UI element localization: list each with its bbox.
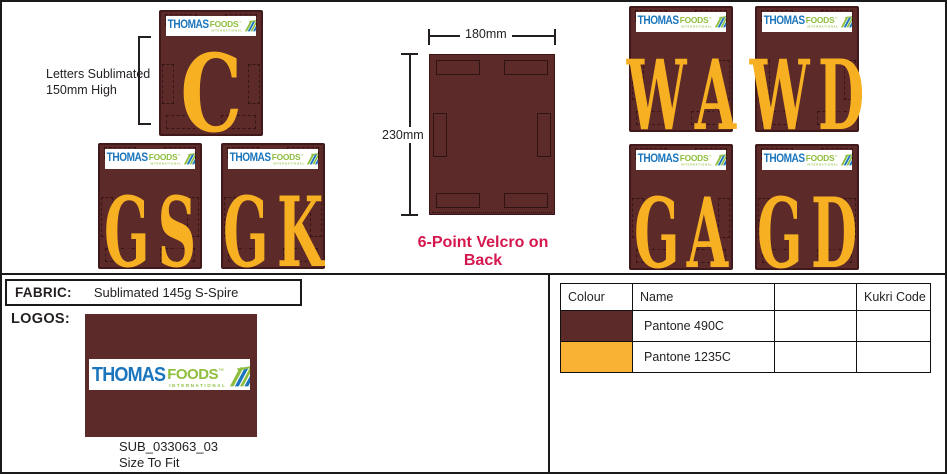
- patch-back-view: [429, 54, 555, 215]
- table-header-row: Colour Name Kukri Code: [561, 284, 931, 311]
- patch-letter: G✶: [755, 224, 805, 282]
- tfi-field-icon: [840, 13, 852, 28]
- tfi-field-icon: [840, 151, 852, 166]
- logo-thomas-text: THOMAS: [168, 18, 209, 32]
- size-to-fit: Size To Fit: [119, 455, 218, 471]
- logo-foods-wrap: FOODS™ INTERNATIONAL: [806, 16, 838, 26]
- logo-foods-wrap: FOODS™ INTERNATIONAL: [806, 154, 838, 164]
- logo-foods-text: FOODS: [680, 16, 708, 26]
- height-bracket: [138, 36, 151, 125]
- blank-cell: [775, 311, 857, 342]
- colour-swatch-gold: [561, 342, 633, 373]
- letter-patch-c: THOMAS FOODS™ INTERNATIONAL C✶: [159, 10, 263, 136]
- letter-patch-gd: THOMAS FOODS™ INTERNATIONAL G✶D✶: [755, 144, 859, 270]
- height-dimension-tick: [401, 53, 418, 55]
- thomas-foods-logo: THOMAS FOODS™ INTERNATIONAL: [636, 12, 726, 29]
- logo-swatch: THOMAS FOODS™ INTERNATIONAL: [85, 314, 257, 437]
- logo-foods-text: FOODS: [680, 154, 708, 164]
- patch-logo-strip: THOMAS FOODS™ INTERNATIONAL: [105, 149, 195, 169]
- colour-table: Colour Name Kukri Code Pantone 490C Pant…: [560, 283, 931, 373]
- logo-international-text: INTERNATIONAL: [273, 162, 305, 165]
- logo-trademark: ™: [708, 17, 711, 20]
- thomas-foods-logo: THOMAS FOODS™ INTERNATIONAL: [105, 149, 195, 166]
- patch-letters: G✶A✶: [631, 224, 731, 282]
- kukri-emblem-icon: ✶: [207, 112, 215, 121]
- patch-letter: G✶: [102, 223, 152, 281]
- logo-trademark: ™: [834, 17, 837, 20]
- logo-trademark: ™: [177, 154, 180, 157]
- patch-letters: G✶D✶: [757, 224, 857, 282]
- logo-international-text: INTERNATIONAL: [150, 162, 182, 165]
- letter-patch-gk: THOMAS FOODS™ INTERNATIONAL G✶K✶: [221, 143, 325, 269]
- patch-logo-strip: THOMAS FOODS™ INTERNATIONAL: [762, 12, 852, 32]
- logo-thomas-text: THOMAS: [764, 14, 805, 28]
- kukri-emblem-icon: ✶: [653, 246, 661, 255]
- patch-logo-strip: THOMAS FOODS™ INTERNATIONAL: [762, 150, 852, 170]
- stitch-line: [432, 212, 552, 213]
- velcro-strip: [504, 60, 548, 75]
- logo-foods-text: FOODS: [272, 153, 300, 163]
- height-dimension-tick: [401, 214, 418, 216]
- velcro-strip: [436, 193, 480, 208]
- logo-foods-wrap: FOODS™ INTERNATIONAL: [272, 153, 304, 163]
- patch-letters: G✶S✶: [100, 223, 200, 281]
- patch-letter: K✶: [275, 223, 325, 281]
- letter-patch-wa: THOMAS FOODS™ INTERNATIONAL W✶A✶: [629, 6, 733, 132]
- logo-international-text: INTERNATIONAL: [807, 25, 839, 28]
- kukri-emblem-icon: ✶: [704, 246, 712, 255]
- kukri-emblem-icon: ✶: [296, 245, 304, 254]
- logo-international-text: INTERNATIONAL: [681, 25, 713, 28]
- tfi-field-icon: [714, 151, 726, 166]
- logo-foods-wrap: FOODS™ INTERNATIONAL: [210, 20, 242, 30]
- logo-thomas-text: THOMAS: [107, 151, 148, 165]
- logo-thomas-text: THOMAS: [230, 151, 271, 165]
- sublimation-code: SUB_033063_03 Size To Fit: [119, 439, 218, 470]
- logo-foods-text: FOODS: [210, 20, 238, 30]
- thomas-foods-logo: THOMAS FOODS™ INTERNATIONAL: [166, 16, 256, 33]
- thomas-foods-logo: THOMAS FOODS™ INTERNATIONAL: [228, 149, 318, 166]
- tfi-field-icon: [183, 150, 195, 165]
- logo-thomas-text: THOMAS: [764, 152, 805, 166]
- colour-name: Pantone 1235C: [633, 342, 775, 373]
- logo-international-text: INTERNATIONAL: [169, 383, 226, 388]
- kukri-code-cell: [857, 311, 931, 342]
- letter-patch-ga: THOMAS FOODS™ INTERNATIONAL G✶A✶: [629, 144, 733, 270]
- letter-patch-gs: THOMAS FOODS™ INTERNATIONAL G✶S✶: [98, 143, 202, 269]
- kukri-emblem-icon: ✶: [242, 245, 250, 254]
- kukri-emblem-icon: ✶: [123, 245, 131, 254]
- logo-international-text: INTERNATIONAL: [211, 29, 243, 32]
- logo-foods-wrap: FOODS™ INTERNATIONAL: [680, 154, 712, 164]
- logo-foods-text: FOODS: [167, 366, 218, 383]
- logo-thomas-text: THOMAS: [92, 362, 165, 386]
- patch-logo-strip: THOMAS FOODS™ INTERNATIONAL: [166, 16, 256, 36]
- patch-logo-strip: THOMAS FOODS™ INTERNATIONAL: [636, 150, 726, 170]
- velcro-strip: [504, 193, 548, 208]
- kukri-emblem-icon: ✶: [776, 108, 784, 117]
- thomas-foods-logo: THOMAS FOODS™ INTERNATIONAL: [89, 359, 250, 390]
- colour-name: Pantone 490C: [633, 311, 775, 342]
- velcro-note: 6-Point Velcro on Back: [402, 234, 564, 270]
- logo-trademark: ™: [834, 155, 837, 158]
- patch-letter: D✶: [816, 86, 866, 144]
- patch-logo-strip: THOMAS FOODS™ INTERNATIONAL: [636, 12, 726, 32]
- patch-letter: D✶: [809, 224, 859, 282]
- tfi-field-icon: [306, 150, 318, 165]
- width-dimension-tick: [554, 29, 556, 45]
- patch-letters: W✶A✶: [631, 86, 731, 144]
- thomas-foods-logo: THOMAS FOODS™ INTERNATIONAL: [762, 150, 852, 167]
- kukri-emblem-icon: ✶: [838, 108, 846, 117]
- velcro-strip: [537, 113, 551, 157]
- velcro-strip: [433, 113, 447, 157]
- blank-cell: [775, 342, 857, 373]
- fabric-label: FABRIC:: [7, 285, 72, 300]
- table-row: Pantone 1235C: [561, 342, 931, 373]
- patch-letter: W✶: [624, 86, 689, 144]
- logo-trademark: ™: [300, 154, 303, 157]
- patch-letter: G✶: [221, 223, 271, 281]
- patch-logo-strip: THOMAS FOODS™ INTERNATIONAL: [228, 149, 318, 169]
- logos-label: LOGOS:: [11, 311, 70, 327]
- patch-letters: C✶: [161, 72, 261, 148]
- kukri-emblem-icon: ✶: [830, 246, 838, 255]
- logo-international-text: INTERNATIONAL: [807, 163, 839, 166]
- patch-letter: W✶: [747, 86, 812, 144]
- sub-code-value: SUB_033063_03: [119, 439, 218, 455]
- logo-trademark: ™: [238, 21, 241, 24]
- logo-foods-text: FOODS: [149, 153, 177, 163]
- logo-thomas-text: THOMAS: [638, 14, 679, 28]
- letter-patch-wd: THOMAS FOODS™ INTERNATIONAL W✶D✶: [755, 6, 859, 132]
- logo-trademark: ™: [218, 368, 224, 374]
- patch-letters: G✶K✶: [223, 223, 323, 281]
- tfi-field-icon: [714, 13, 726, 28]
- patch-letter: G✶: [632, 224, 682, 282]
- logo-thomas-text: THOMAS: [638, 152, 679, 166]
- height-dimension-label: 230mm: [379, 127, 427, 143]
- logo-trademark: ™: [708, 155, 711, 158]
- logo-foods-wrap: FOODS™ INTERNATIONAL: [149, 153, 181, 163]
- tfi-field-icon: [228, 362, 250, 388]
- header-colour: Colour: [561, 284, 633, 311]
- patch-letter: A✶: [685, 224, 730, 282]
- logo-foods-wrap: FOODS™ INTERNATIONAL: [167, 366, 224, 384]
- patch-letter: S✶: [156, 223, 198, 281]
- logo-strip-large: THOMAS FOODS™ INTERNATIONAL: [89, 359, 250, 390]
- logo-foods-wrap: FOODS™ INTERNATIONAL: [680, 16, 712, 26]
- logo-foods-text: FOODS: [806, 16, 834, 26]
- patch-letter: C✶: [181, 72, 242, 148]
- width-dimension-tick: [428, 29, 430, 45]
- vertical-divider: [548, 273, 550, 474]
- kukri-emblem-icon: ✶: [653, 108, 661, 117]
- header-kukri-code: Kukri Code: [857, 284, 931, 311]
- logo-international-text: INTERNATIONAL: [681, 163, 713, 166]
- spec-sheet-canvas: Letters Sublimated 150mm High THOMAS FOO…: [0, 0, 947, 474]
- velcro-strip: [436, 60, 480, 75]
- patch-letters: W✶D✶: [757, 86, 857, 144]
- colour-swatch-maroon: [561, 311, 633, 342]
- thomas-foods-logo: THOMAS FOODS™ INTERNATIONAL: [636, 150, 726, 167]
- kukri-emblem-icon: ✶: [776, 246, 784, 255]
- table-row: Pantone 490C: [561, 311, 931, 342]
- kukri-code-cell: [857, 342, 931, 373]
- patch-letter: A✶: [693, 86, 738, 144]
- width-dimension-label: 180mm: [460, 27, 512, 41]
- logo-foods-text: FOODS: [806, 154, 834, 164]
- thomas-foods-logo: THOMAS FOODS™ INTERNATIONAL: [762, 12, 852, 29]
- kukri-emblem-icon: ✶: [173, 245, 181, 254]
- tfi-field-icon: [244, 17, 256, 32]
- kukri-emblem-icon: ✶: [712, 108, 720, 117]
